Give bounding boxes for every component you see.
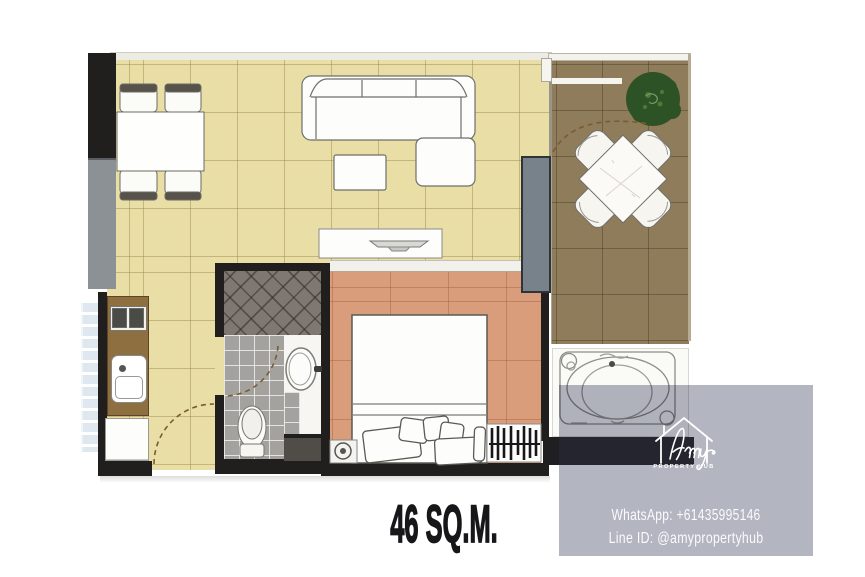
svg-text:PROPERTY HUB: PROPERTY HUB xyxy=(653,464,714,470)
